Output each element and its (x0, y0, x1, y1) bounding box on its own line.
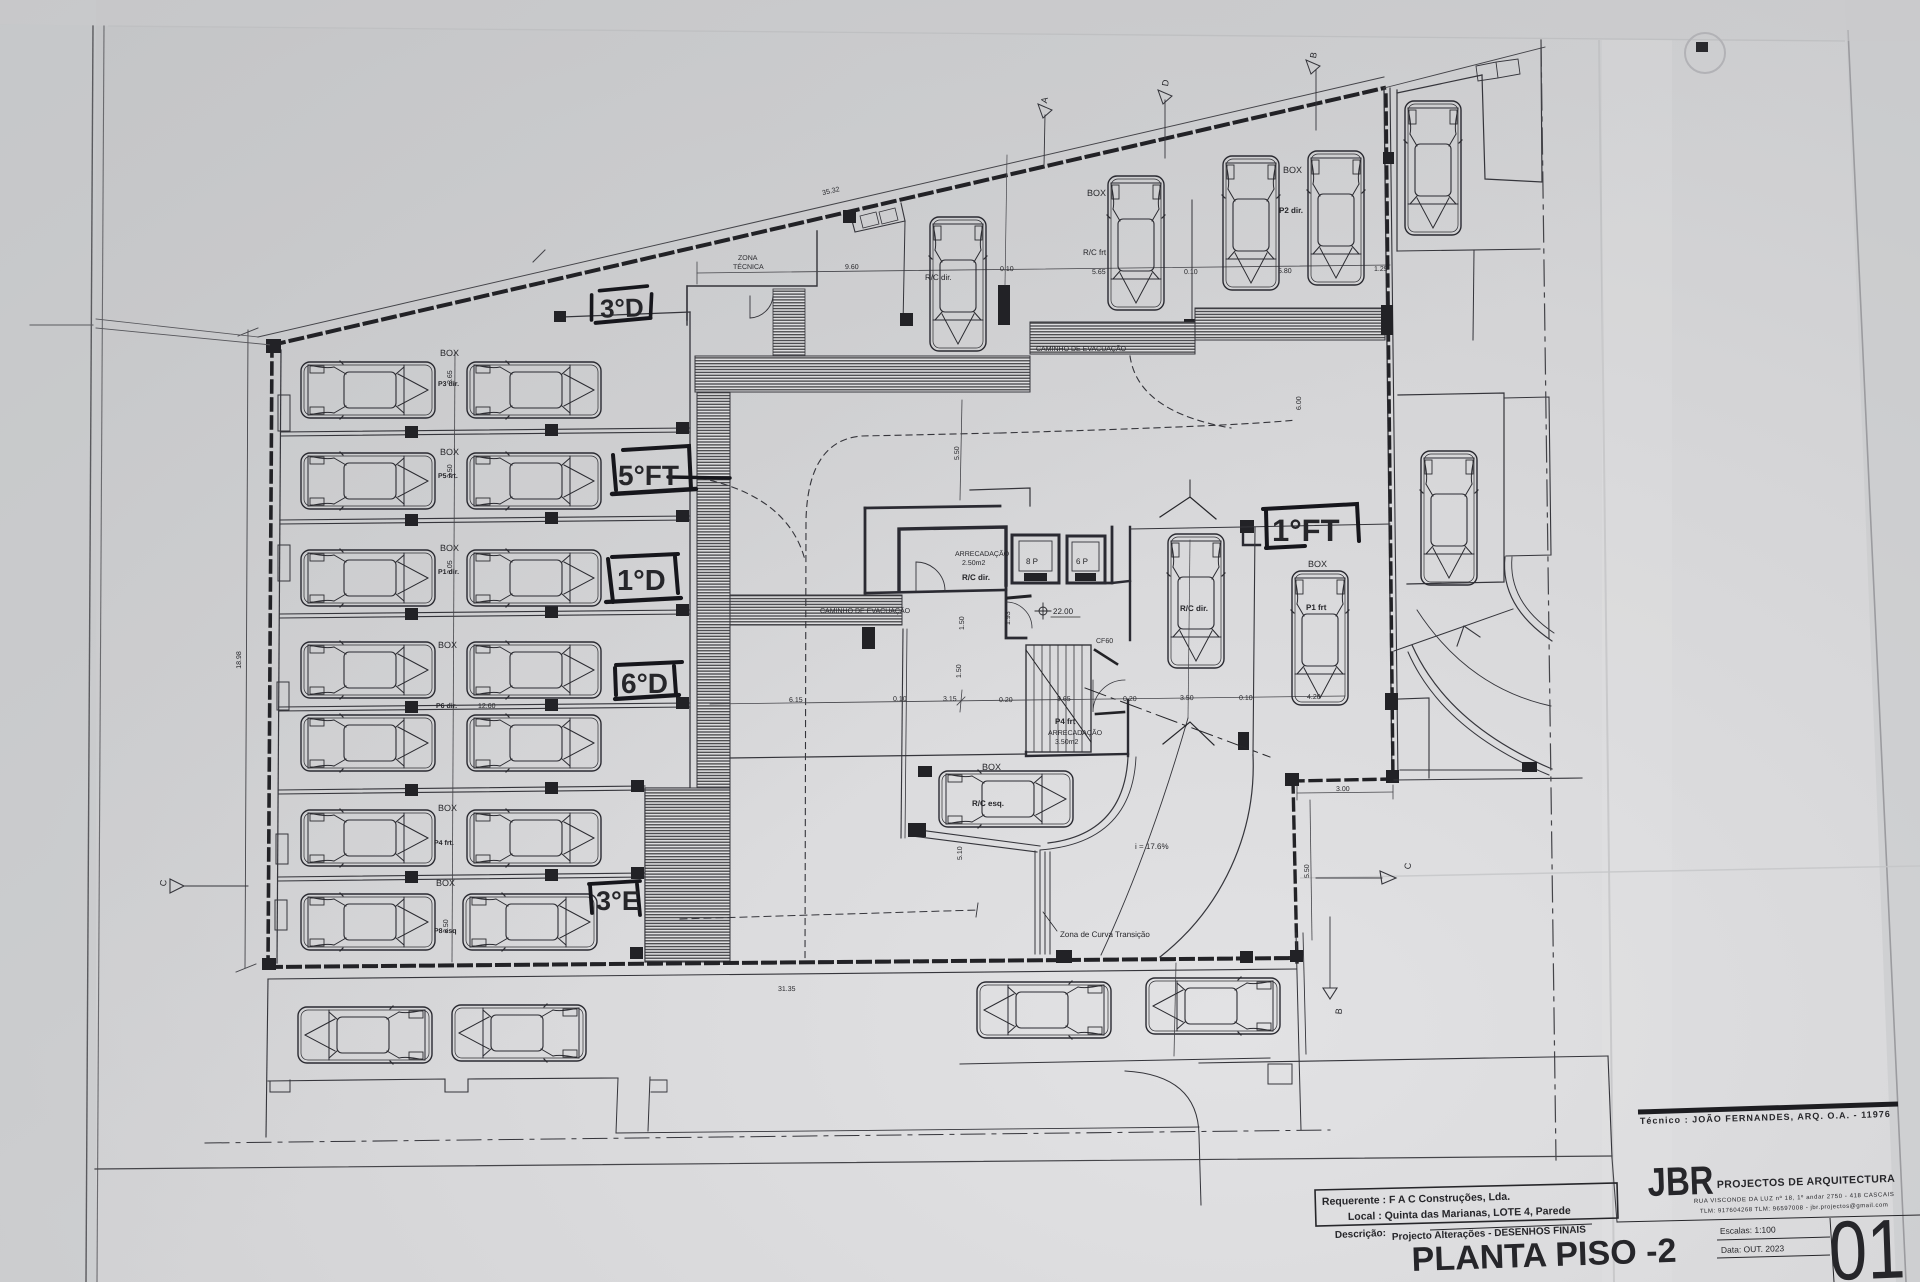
svg-text:ARRECADAÇÃO: ARRECADAÇÃO (1048, 728, 1103, 737)
svg-text:CF60: CF60 (1096, 638, 1113, 645)
svg-text:BOX: BOX (1087, 188, 1106, 198)
svg-text:BOX: BOX (1283, 165, 1302, 175)
svg-text:0.10: 0.10 (1239, 695, 1253, 702)
svg-text:R/C dir.: R/C dir. (1180, 604, 1208, 613)
svg-text:3.00: 3.00 (1336, 786, 1350, 793)
svg-text:31.35: 31.35 (778, 986, 796, 993)
svg-text:BOX: BOX (438, 640, 457, 650)
svg-text:2.50: 2.50 (447, 464, 454, 478)
svg-text:P2 dir.: P2 dir. (1279, 206, 1303, 215)
svg-text:5.50: 5.50 (1304, 864, 1311, 878)
svg-text:1°D: 1°D (617, 565, 666, 597)
svg-text:BOX: BOX (982, 762, 1001, 772)
svg-text:BOX: BOX (438, 803, 457, 813)
svg-text:CAMINHO DE EVACUAÇÃO: CAMINHO DE EVACUAÇÃO (1036, 344, 1127, 353)
svg-text:0.10: 0.10 (893, 696, 907, 703)
svg-text:6.15: 6.15 (789, 697, 803, 704)
svg-text:9.60: 9.60 (845, 264, 859, 271)
svg-text:P6 dir.: P6 dir. (436, 702, 457, 710)
svg-text:6°D: 6°D (621, 668, 668, 699)
svg-text:3.50: 3.50 (1180, 695, 1194, 702)
svg-text:0.10: 0.10 (1000, 266, 1014, 273)
svg-text:6 P: 6 P (1076, 557, 1088, 566)
svg-text:1.50: 1.50 (956, 664, 963, 678)
svg-text:P1 frt: P1 frt (1306, 603, 1327, 612)
svg-text:1.93: 1.93 (1005, 611, 1012, 625)
svg-text:1.50: 1.50 (959, 616, 966, 630)
svg-text:5.65: 5.65 (1092, 269, 1106, 276)
svg-text:3.65: 3.65 (1057, 696, 1071, 703)
svg-text:BOX: BOX (440, 543, 459, 553)
svg-text:TÉCNICA: TÉCNICA (733, 262, 764, 271)
svg-text:Escalas: 1:100: Escalas: 1:100 (1720, 1224, 1776, 1236)
svg-text:6.00: 6.00 (1296, 396, 1303, 410)
svg-text:5.10: 5.10 (957, 846, 964, 860)
svg-text:18.98: 18.98 (236, 651, 243, 669)
svg-text:R/C frt: R/C frt (1083, 248, 1107, 257)
svg-text:5.80: 5.80 (1278, 268, 1292, 275)
svg-text:0.10: 0.10 (1184, 269, 1198, 276)
svg-text:BOX: BOX (440, 447, 459, 457)
svg-text:3.65: 3.65 (447, 370, 454, 384)
svg-text:P4 frt.: P4 frt. (434, 839, 454, 847)
svg-text:2.50m2: 2.50m2 (962, 560, 985, 567)
svg-text:i = 17.6%: i = 17.6% (1135, 842, 1169, 851)
svg-text:22.00: 22.00 (1053, 607, 1074, 616)
svg-text:3°D: 3°D (600, 292, 645, 324)
svg-text:BOX: BOX (436, 878, 455, 888)
svg-text:BOX: BOX (1308, 559, 1327, 569)
svg-text:3.05: 3.05 (447, 560, 454, 574)
svg-text:3°E: 3°E (596, 886, 640, 916)
svg-text:5.50: 5.50 (954, 446, 961, 460)
svg-text:CAMINHO DE EVACUAÇÃO: CAMINHO DE EVACUAÇÃO (820, 606, 911, 615)
svg-text:01: 01 (1827, 1201, 1906, 1282)
svg-text:Zona de Curva Transição: Zona de Curva Transição (1060, 930, 1150, 939)
svg-text:12.60: 12.60 (478, 703, 496, 710)
svg-text:8 P: 8 P (1026, 557, 1038, 566)
svg-text:R/C esq.: R/C esq. (972, 799, 1004, 808)
svg-text:R/C dir.: R/C dir. (962, 573, 990, 582)
svg-text:BOX: BOX (440, 348, 459, 358)
svg-text:3.15: 3.15 (943, 696, 957, 703)
svg-text:2.50: 2.50 (443, 919, 450, 933)
svg-text:ARRECADAÇÃO: ARRECADAÇÃO (955, 549, 1010, 558)
svg-text:P4 frt: P4 frt (1055, 717, 1076, 726)
svg-text:R/C dir.: R/C dir. (925, 273, 952, 282)
svg-text:Data: OUT. 2023: Data: OUT. 2023 (1721, 1243, 1785, 1255)
svg-text:ZONA: ZONA (738, 255, 758, 262)
svg-text:5°FT: 5°FT (618, 460, 679, 491)
svg-text:B: B (1333, 1008, 1343, 1015)
svg-text:1°FT: 1°FT (1272, 513, 1340, 548)
svg-text:3.50m2: 3.50m2 (1055, 739, 1078, 746)
svg-text:Descrição:: Descrição: (1335, 1228, 1387, 1241)
svg-text:0.20: 0.20 (999, 697, 1013, 704)
svg-text:0.20: 0.20 (1123, 696, 1137, 703)
